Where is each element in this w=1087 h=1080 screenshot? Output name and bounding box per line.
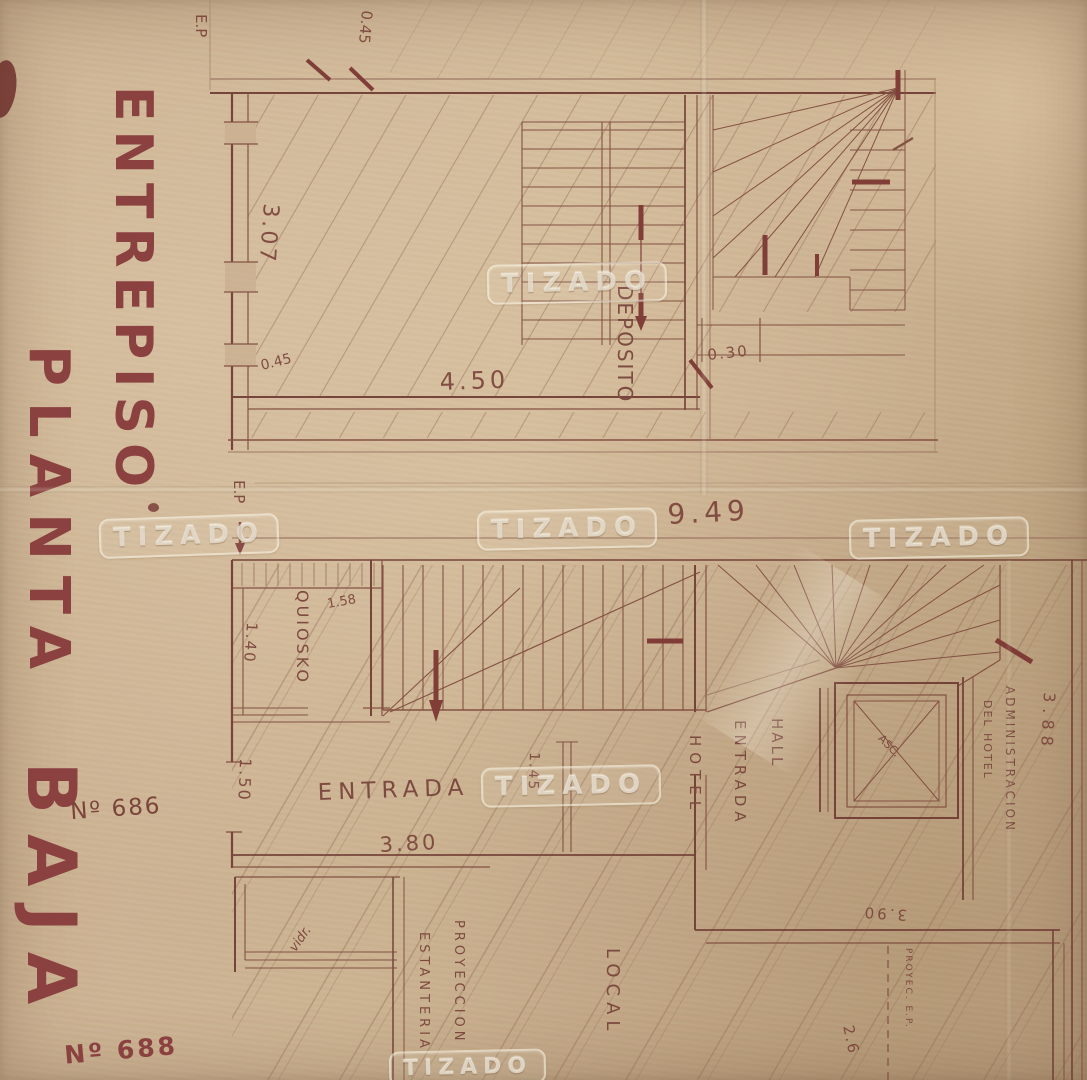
- title-planta: PLANTA: [16, 345, 81, 685]
- dim-949: 9.49: [667, 494, 751, 531]
- dim-388: 3.88: [1037, 692, 1059, 753]
- room-label-deposito: DEPOSITO: [613, 285, 637, 403]
- tizado-watermark: TIZADO: [477, 507, 658, 551]
- dim-380: 3.80: [379, 830, 439, 857]
- dim-140: 1.40: [240, 622, 261, 665]
- tizado-watermark: TIZADO: [849, 516, 1030, 560]
- dim-045-top: 0.45: [355, 10, 376, 45]
- dim-390: 3.90: [861, 903, 908, 924]
- dim-450: 4.50: [439, 366, 509, 396]
- dim-307: 3.07: [254, 203, 283, 266]
- tizado-watermark: TIZADO: [98, 513, 279, 559]
- margin-titles: ENTREPISO PLANTA BAJA Nº 686 Nº 688: [11, 86, 179, 1070]
- tizado-watermark: TIZADO: [487, 261, 668, 305]
- dim-150: 1.50: [234, 758, 255, 802]
- label-del-hotel: DEL HOTEL: [981, 700, 994, 780]
- label-proyec-ep: PROYEC. E.P.: [903, 948, 913, 1029]
- ep-marker-top: E.P: [192, 14, 210, 37]
- dim-030: 0.30: [707, 342, 750, 364]
- label-proyeccion: PROYECCION: [451, 920, 466, 1045]
- street-number-686: Nº 686: [69, 793, 162, 825]
- ink-dot: [148, 503, 159, 512]
- room-label-local: LOCAL: [602, 948, 623, 1036]
- horizontal-fold-crease: [0, 486, 1087, 493]
- room-label-entrada: ENTRADA: [317, 775, 469, 806]
- entrepiso-hatch: [248, 95, 936, 397]
- room-label-hotel: HOTEL: [686, 735, 704, 815]
- street-number-688: Nº 688: [63, 1031, 179, 1070]
- vertical-fold-crease-right: [1005, 560, 1013, 1080]
- title-entrepiso: ENTREPISO: [103, 86, 163, 496]
- room-label-quiosko: QUIOSKO: [293, 590, 312, 685]
- top-strip-hatch: [390, 0, 936, 79]
- label-estanteria: ESTANTERIA: [416, 932, 431, 1052]
- tizado-watermark: TIZADO: [389, 1048, 547, 1080]
- sidewalk-hatch-band: [248, 412, 935, 438]
- tizado-watermark: TIZADO: [481, 764, 662, 808]
- vertical-fold-crease: [700, 0, 708, 495]
- scanned-plan-sheet: E.P 0.45 DEPOSITO 3.07 0.45 4.50 0.30 E.…: [0, 0, 1087, 1080]
